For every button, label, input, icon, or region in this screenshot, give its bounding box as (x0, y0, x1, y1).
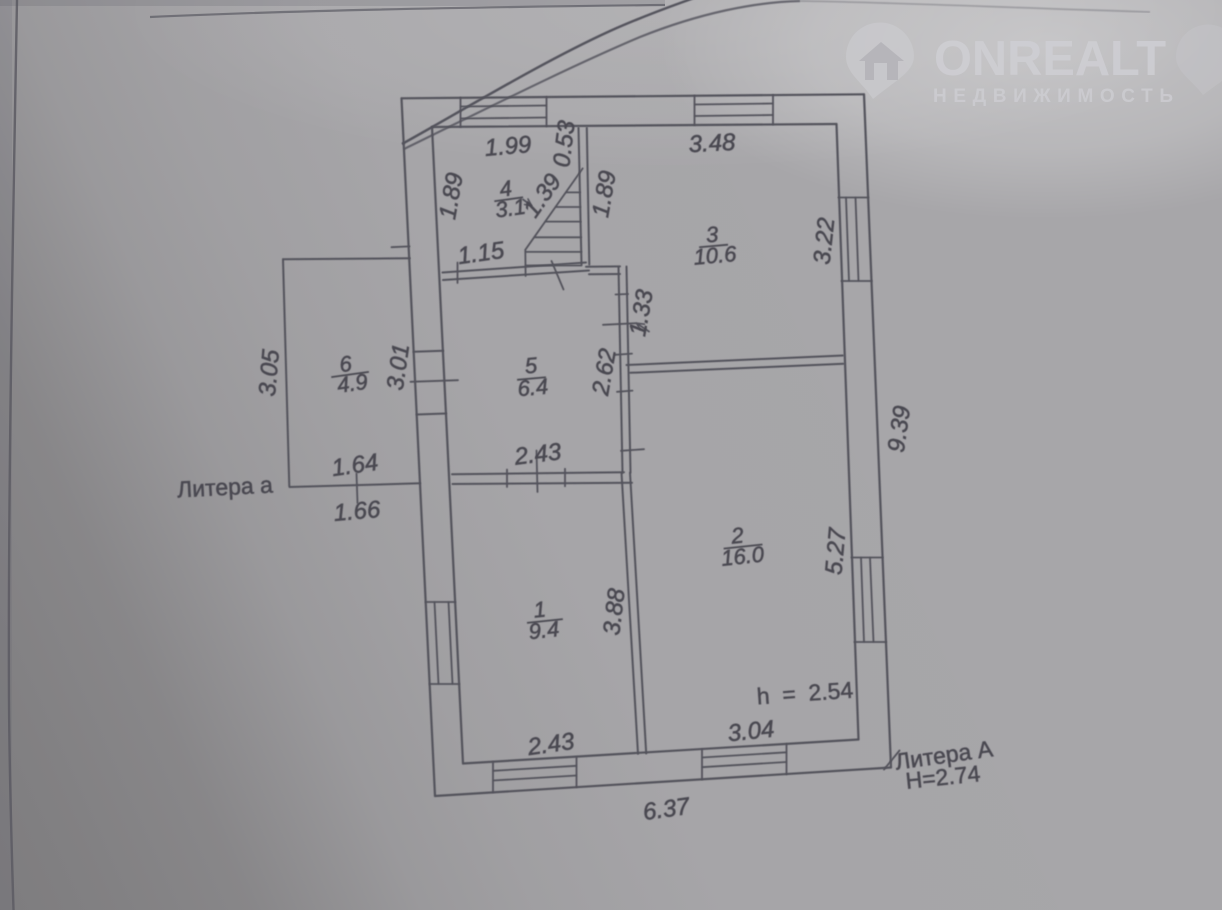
svg-text:5.27: 5.27 (821, 525, 852, 576)
svg-text:3.88: 3.88 (598, 586, 631, 636)
svg-text:9.4: 9.4 (527, 616, 560, 644)
svg-text:1.99: 1.99 (484, 131, 533, 162)
svg-text:6.4: 6.4 (516, 374, 549, 402)
svg-text:1.66: 1.66 (333, 496, 383, 527)
svg-text:3.05: 3.05 (254, 348, 285, 398)
svg-text:3.04: 3.04 (726, 716, 775, 748)
svg-text:0.53: 0.53 (548, 118, 581, 168)
svg-text:3.22: 3.22 (809, 216, 841, 265)
svg-text:16.0: 16.0 (720, 541, 766, 570)
svg-text:10.6: 10.6 (692, 241, 738, 270)
svg-text:4.9: 4.9 (335, 369, 369, 398)
svg-text:НЕДВИЖИМОСТЬ: НЕДВИЖИМОСТЬ (933, 86, 1180, 107)
svg-text:Литера а: Литера а (176, 472, 273, 503)
svg-text:ONREALT: ONREALT (934, 32, 1166, 86)
svg-text:3.48: 3.48 (688, 129, 737, 158)
